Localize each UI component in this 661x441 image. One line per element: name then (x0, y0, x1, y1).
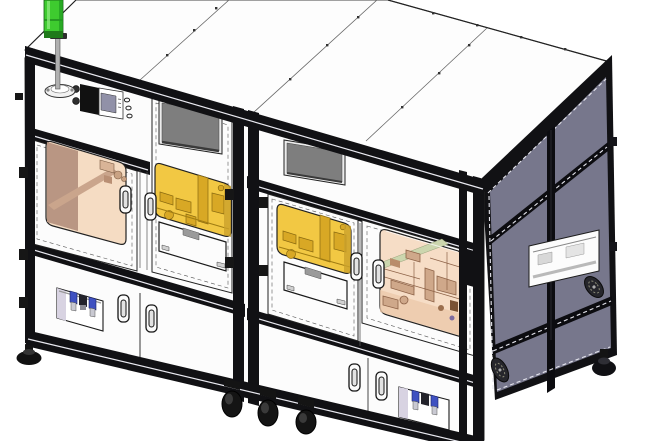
machinery-shape (450, 300, 458, 312)
corner-tab (15, 93, 23, 100)
hinge-tab (19, 167, 28, 178)
light-base-band (44, 31, 63, 38)
round-button-2 (73, 98, 80, 105)
pneumatic-cap (80, 305, 86, 310)
pneumatic-bowl (413, 401, 418, 410)
machinery-shape (425, 268, 434, 302)
caster-hub (299, 413, 307, 423)
machinery-shape (122, 177, 127, 182)
junction-bracket (259, 265, 268, 276)
machinery-shape (114, 171, 122, 179)
base-bolt (70, 88, 73, 91)
junction-bracket (259, 197, 268, 208)
door-handle-grip (148, 198, 153, 215)
door-handle-grip (352, 369, 357, 386)
machinery-shape (218, 185, 224, 191)
machinery-shape (438, 305, 444, 311)
machinery-shape (400, 296, 408, 304)
door-handle-grip (376, 265, 381, 283)
junction-bracket (225, 189, 234, 200)
frame-post-junction-a (233, 106, 244, 402)
caster-wheel-3 (296, 396, 316, 434)
machinery-shape (450, 316, 455, 321)
pneumatic-bowl (71, 302, 76, 311)
control-display-screen (101, 93, 116, 113)
pneumatic-valve (421, 392, 429, 406)
recess-wall (399, 387, 408, 419)
interior-wall (47, 142, 78, 231)
caster-wheel-2 (258, 387, 278, 426)
light-shade (59, 0, 63, 31)
pneumatic-bowl (90, 308, 95, 317)
caster-hub (225, 394, 233, 405)
pneumatic-bowl (432, 406, 437, 415)
display-tick (118, 99, 121, 100)
glass-shade (344, 224, 351, 274)
cad-viewport (0, 0, 661, 441)
light-highlight (47, 1, 50, 29)
door-handle-grip (123, 191, 128, 208)
tower-light-green (44, 0, 63, 38)
control-display-dark (80, 84, 99, 115)
indicator-button (124, 98, 129, 102)
machinery-shape (320, 215, 330, 262)
side-bracket (610, 137, 617, 146)
door-handle-grip (354, 258, 359, 275)
junction-bracket (225, 257, 234, 268)
base-bolt (46, 88, 49, 91)
machinery-shape (198, 175, 208, 224)
machine-render (0, 0, 661, 441)
caster-tire (222, 391, 242, 417)
hinge-tab (19, 249, 28, 260)
foot-top (23, 349, 35, 355)
door-handle-grip (121, 300, 126, 317)
indicator-button (127, 114, 132, 118)
caster-wheel-1 (222, 378, 242, 417)
caster-hub (261, 403, 269, 414)
door-handle-grip (149, 310, 154, 327)
indicator-button (126, 106, 131, 110)
frame-post-right-inner (459, 170, 467, 441)
caster-tire (258, 400, 278, 426)
hinge-tab (19, 297, 28, 308)
display-tick (118, 107, 121, 108)
tower-pole (56, 37, 61, 89)
side-bracket (610, 242, 617, 251)
door-hinge (467, 249, 474, 287)
foot-stem (600, 349, 608, 358)
caster-tire (296, 410, 316, 434)
foot-top (598, 358, 610, 365)
door-handle-grip (379, 377, 384, 395)
frame-post-right-corner (473, 176, 484, 441)
frame-post-junction-b (248, 110, 259, 406)
machinery-shape (212, 193, 224, 214)
display-tick (118, 103, 121, 104)
